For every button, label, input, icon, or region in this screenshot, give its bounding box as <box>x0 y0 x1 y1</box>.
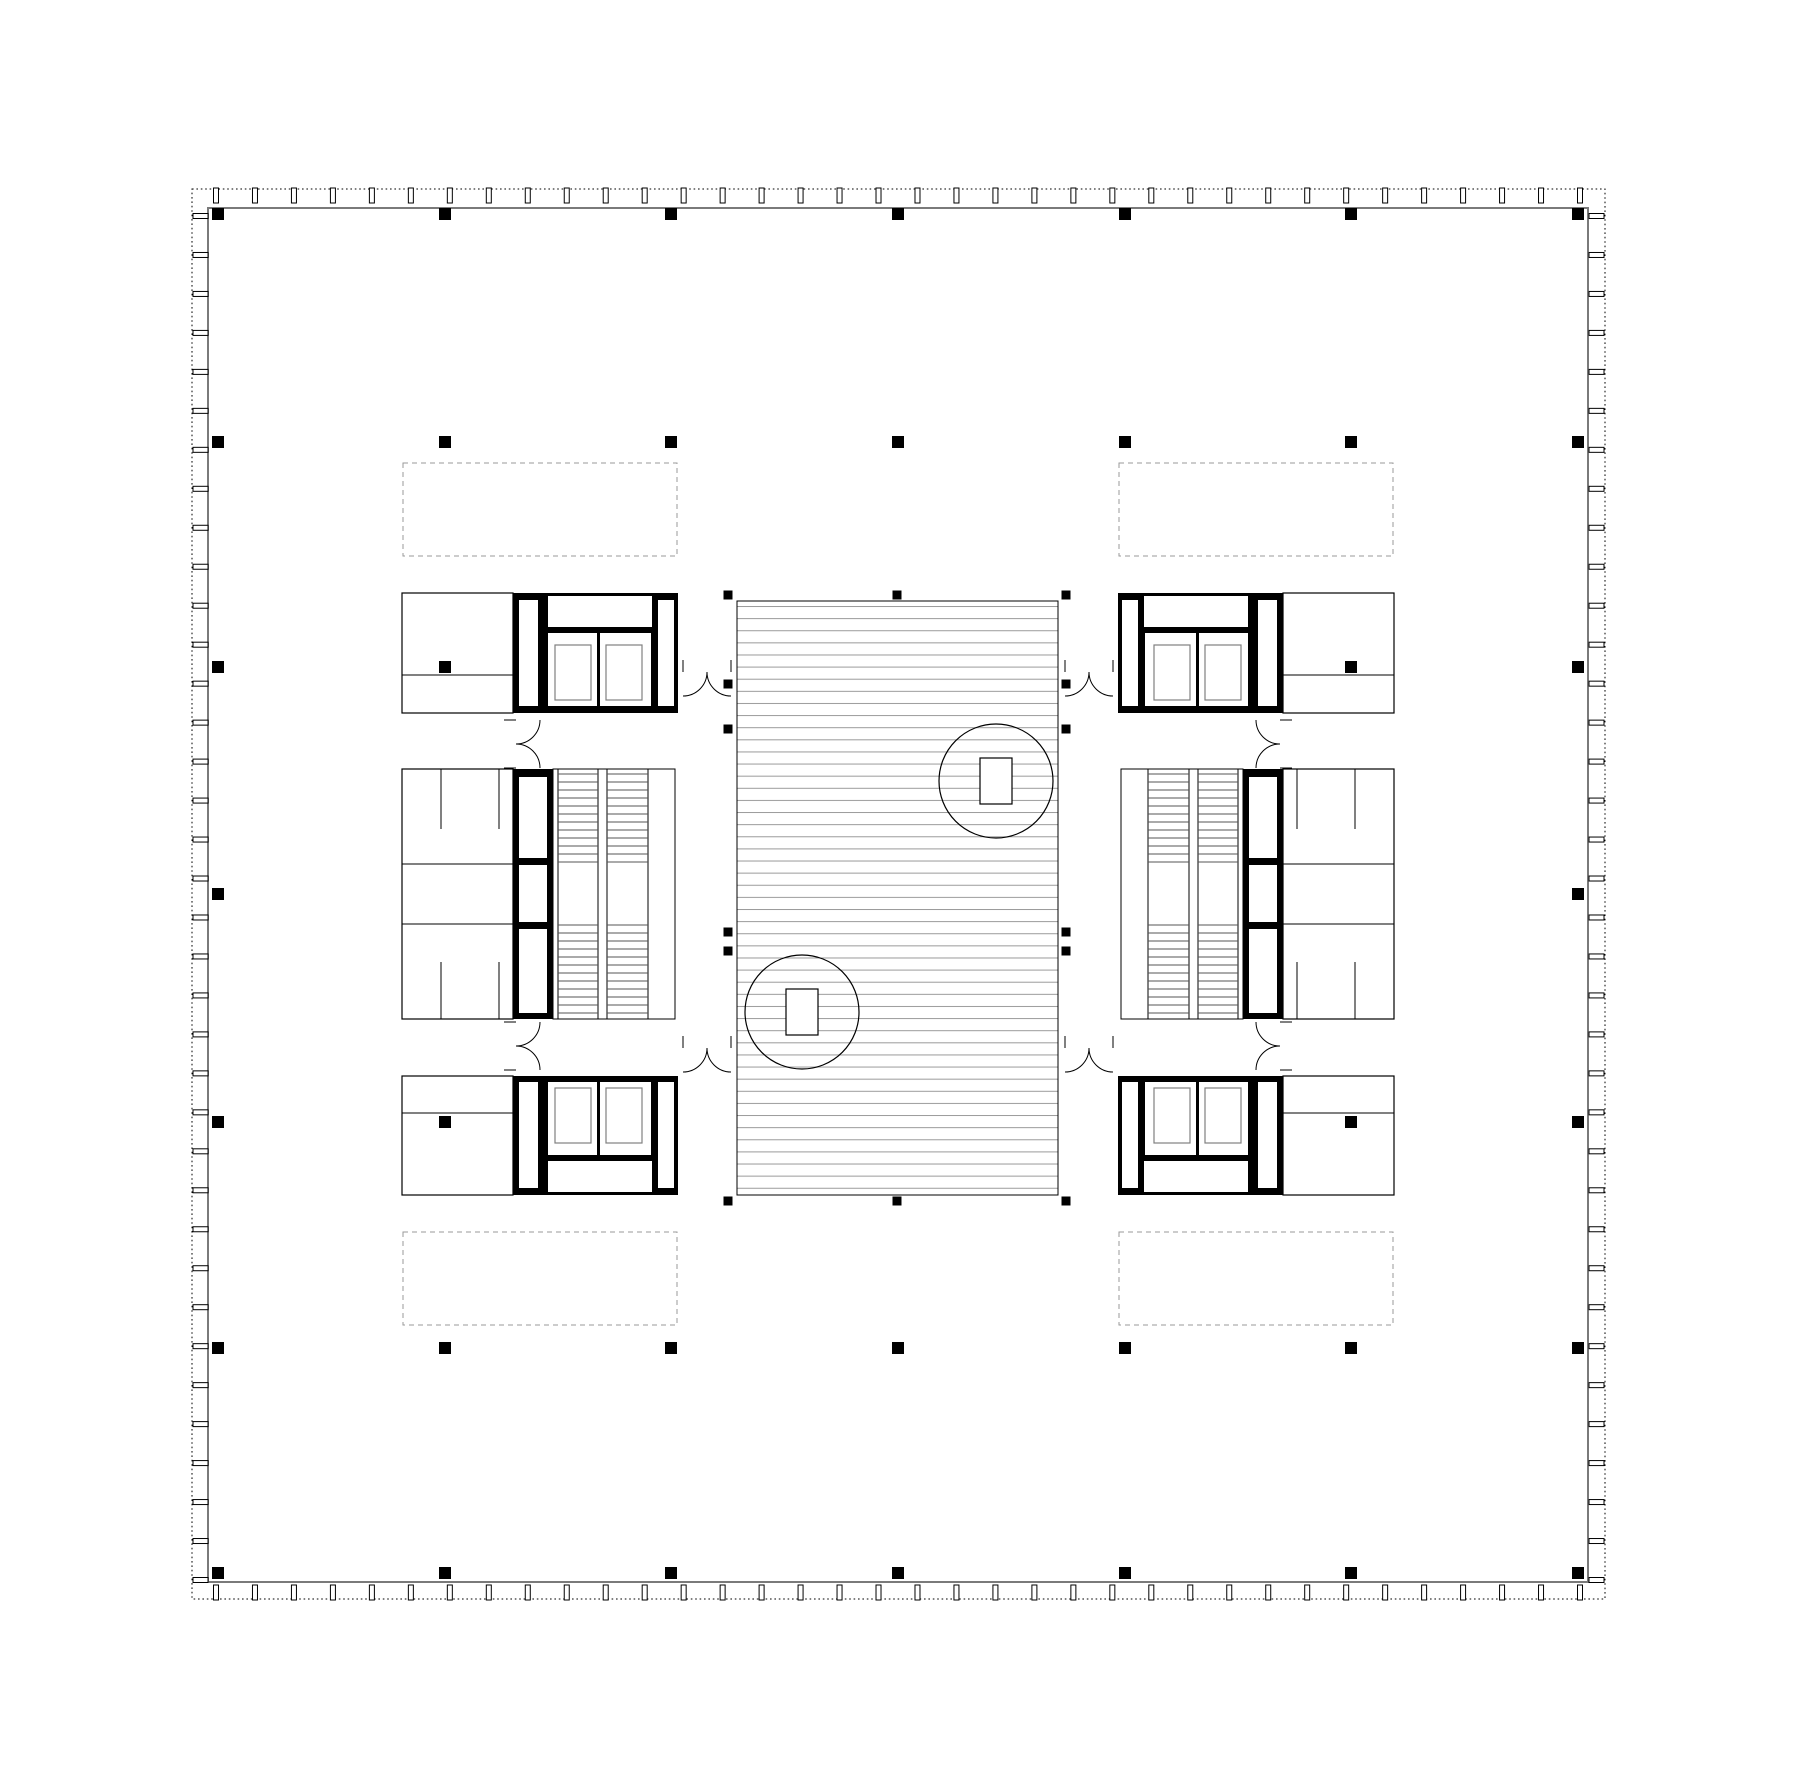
mullion-tick-right <box>1589 993 1604 998</box>
shaft-opening <box>1249 929 1277 1013</box>
mullion-tick-top <box>369 188 374 203</box>
mullion-tick-left <box>193 1149 208 1154</box>
mullion-tick-right <box>1589 1305 1604 1310</box>
mullion-tick-right <box>1589 720 1604 725</box>
structural-column <box>212 1342 224 1354</box>
atrium-edge-post <box>1062 928 1071 937</box>
structural-column <box>892 208 904 220</box>
mullion-tick-top <box>408 188 413 203</box>
mullion-tick-left <box>193 1188 208 1193</box>
shaft-opening <box>519 1082 538 1188</box>
mullion-tick-right <box>1589 564 1604 569</box>
mullion-tick-left <box>193 603 208 608</box>
mullion-tick-bottom <box>1578 1585 1583 1600</box>
structural-column <box>1572 1342 1584 1354</box>
mullion-tick-bottom <box>1539 1585 1544 1600</box>
structural-column <box>212 888 224 900</box>
mullion-tick-top <box>681 188 686 203</box>
atrium-feature-rect <box>786 989 818 1035</box>
structural-column <box>1572 436 1584 448</box>
structural-column <box>1119 436 1131 448</box>
mullion-tick-left <box>193 681 208 686</box>
mullion-tick-bottom <box>330 1585 335 1600</box>
mullion-tick-right <box>1589 642 1604 647</box>
mullion-tick-left <box>193 330 208 335</box>
mullion-tick-right <box>1589 954 1604 959</box>
mullion-tick-right <box>1589 1500 1604 1505</box>
mullion-tick-right <box>1589 252 1604 257</box>
mullion-tick-bottom <box>954 1585 959 1600</box>
elevator-car <box>606 645 642 700</box>
mullion-tick-right <box>1589 915 1604 920</box>
mullion-tick-right <box>1589 798 1604 803</box>
structural-column <box>665 1567 677 1579</box>
mullion-tick-top <box>252 188 257 203</box>
mullion-tick-top <box>1578 188 1583 203</box>
shaft-opening <box>1122 600 1138 706</box>
mullion-tick-top <box>1149 188 1154 203</box>
mullion-tick-right <box>1589 214 1604 219</box>
mullion-tick-bottom <box>603 1585 608 1600</box>
mullion-tick-bottom <box>1344 1585 1349 1600</box>
mullion-tick-left <box>193 837 208 842</box>
mullion-tick-right <box>1589 1149 1604 1154</box>
mullion-tick-left <box>193 291 208 296</box>
mullion-tick-left <box>193 1266 208 1271</box>
atrium-edge-post <box>724 680 733 689</box>
mullion-tick-right <box>1589 1578 1604 1583</box>
floor-plan-page <box>0 0 1800 1787</box>
atrium-edge-post <box>724 591 733 600</box>
mullion-tick-left <box>193 1227 208 1232</box>
structural-column <box>1345 1116 1357 1128</box>
mullion-tick-left <box>193 486 208 491</box>
core-room <box>1283 769 1394 1019</box>
mullion-tick-left <box>193 1110 208 1115</box>
shaft-opening <box>1122 1082 1138 1188</box>
mullion-tick-left <box>193 214 208 219</box>
structural-column <box>665 1342 677 1354</box>
mullion-tick-top <box>603 188 608 203</box>
mullion-tick-top <box>330 188 335 203</box>
mullion-tick-bottom <box>447 1585 452 1600</box>
mullion-tick-left <box>193 447 208 452</box>
mullion-tick-bottom <box>1071 1585 1076 1600</box>
mullion-tick-bottom <box>837 1585 842 1600</box>
mullion-tick-bottom <box>681 1585 686 1600</box>
mullion-tick-left <box>193 1032 208 1037</box>
mullion-tick-right <box>1589 759 1604 764</box>
mullion-tick-top <box>291 188 296 203</box>
atrium-edge-post <box>724 1197 733 1206</box>
mullion-tick-left <box>193 1539 208 1544</box>
structural-column <box>212 661 224 673</box>
mullion-tick-top <box>1344 188 1349 203</box>
mullion-tick-bottom <box>291 1585 296 1600</box>
mullion-tick-right <box>1589 1188 1604 1193</box>
mullion-tick-top <box>447 188 452 203</box>
mullion-tick-bottom <box>798 1585 803 1600</box>
structural-column <box>439 1116 451 1128</box>
mullion-tick-left <box>193 759 208 764</box>
shaft-opening <box>519 777 547 858</box>
structural-column <box>439 1342 451 1354</box>
elevator-car <box>1205 1088 1241 1143</box>
mullion-tick-top <box>837 188 842 203</box>
shaft-opening <box>1144 1161 1248 1192</box>
structural-column <box>1572 888 1584 900</box>
shaft-opening <box>548 1161 652 1192</box>
mullion-tick-right <box>1589 369 1604 374</box>
mullion-tick-right <box>1589 603 1604 608</box>
atrium-edge-post <box>893 1197 902 1206</box>
mullion-tick-right <box>1589 681 1604 686</box>
mullion-tick-left <box>193 954 208 959</box>
atrium-edge-post <box>1062 591 1071 600</box>
mullion-tick-bottom <box>1383 1585 1388 1600</box>
mullion-tick-bottom <box>1188 1585 1193 1600</box>
mullion-tick-top <box>954 188 959 203</box>
mullion-tick-top <box>214 188 219 203</box>
mullion-tick-top <box>525 188 530 203</box>
atrium-edge-post <box>1062 947 1071 956</box>
mullion-tick-bottom <box>1500 1585 1505 1600</box>
mullion-tick-left <box>193 1461 208 1466</box>
structural-column <box>439 208 451 220</box>
mullion-tick-top <box>564 188 569 203</box>
mullion-tick-top <box>798 188 803 203</box>
mullion-tick-bottom <box>369 1585 374 1600</box>
mullion-tick-right <box>1589 1461 1604 1466</box>
mullion-tick-bottom <box>876 1585 881 1600</box>
mullion-tick-top <box>1305 188 1310 203</box>
shaft-opening <box>658 600 674 706</box>
structural-column <box>1119 208 1131 220</box>
shaft-opening <box>519 600 538 706</box>
shaft-opening <box>1249 777 1277 858</box>
mullion-tick-bottom <box>214 1585 219 1600</box>
mullion-tick-right <box>1589 525 1604 530</box>
core-room <box>1283 1076 1394 1195</box>
mullion-tick-left <box>193 1578 208 1583</box>
mullion-tick-right <box>1589 291 1604 296</box>
structural-column <box>665 208 677 220</box>
structural-column <box>1345 436 1357 448</box>
mullion-tick-top <box>1032 188 1037 203</box>
floor-plan-drawing <box>0 0 1800 1787</box>
mullion-tick-right <box>1589 1539 1604 1544</box>
structural-column <box>892 436 904 448</box>
mullion-tick-top <box>486 188 491 203</box>
atrium-edge-post <box>1062 1197 1071 1206</box>
mullion-tick-right <box>1589 876 1604 881</box>
mullion-tick-bottom <box>1110 1585 1115 1600</box>
atrium-hatched-floor <box>737 601 1058 1195</box>
mullion-tick-top <box>993 188 998 203</box>
mullion-tick-left <box>193 798 208 803</box>
shaft-opening <box>658 1082 674 1188</box>
mullion-tick-right <box>1589 1422 1604 1427</box>
atrium-edge-post <box>724 725 733 734</box>
mullion-tick-right <box>1589 1266 1604 1271</box>
structural-column <box>212 208 224 220</box>
mullion-tick-right <box>1589 486 1604 491</box>
mullion-tick-bottom <box>993 1585 998 1600</box>
structural-column <box>212 436 224 448</box>
mullion-tick-left <box>193 1500 208 1505</box>
mullion-tick-bottom <box>1227 1585 1232 1600</box>
mullion-tick-left <box>193 993 208 998</box>
mullion-tick-left <box>193 408 208 413</box>
shaft-opening <box>1144 596 1248 627</box>
structural-column <box>439 661 451 673</box>
mullion-tick-top <box>1383 188 1388 203</box>
mullion-tick-right <box>1589 1383 1604 1388</box>
mullion-tick-bottom <box>564 1585 569 1600</box>
mullion-tick-top <box>1539 188 1544 203</box>
atrium-edge-post <box>724 947 733 956</box>
mullion-tick-top <box>642 188 647 203</box>
structural-column <box>1572 208 1584 220</box>
mullion-tick-right <box>1589 1110 1604 1115</box>
mullion-tick-bottom <box>1266 1585 1271 1600</box>
mullion-tick-left <box>193 876 208 881</box>
mullion-tick-bottom <box>486 1585 491 1600</box>
mullion-tick-left <box>193 1305 208 1310</box>
mullion-tick-top <box>1071 188 1076 203</box>
mullion-tick-bottom <box>525 1585 530 1600</box>
mullion-tick-bottom <box>915 1585 920 1600</box>
structural-column <box>1119 1342 1131 1354</box>
structural-column <box>1345 1342 1357 1354</box>
mullion-tick-right <box>1589 1032 1604 1037</box>
mullion-tick-bottom <box>252 1585 257 1600</box>
mullion-tick-bottom <box>720 1585 725 1600</box>
mullion-tick-top <box>1422 188 1427 203</box>
mullion-tick-left <box>193 1071 208 1076</box>
elevator-car <box>555 645 591 700</box>
mullion-tick-left <box>193 1422 208 1427</box>
mullion-tick-right <box>1589 1227 1604 1232</box>
structural-column <box>1345 1567 1357 1579</box>
mullion-tick-left <box>193 252 208 257</box>
structural-column <box>1345 208 1357 220</box>
mullion-tick-bottom <box>1461 1585 1466 1600</box>
elevator-car <box>555 1088 591 1143</box>
mullion-tick-bottom <box>642 1585 647 1600</box>
shaft-opening <box>1258 600 1277 706</box>
shaft-opening <box>548 596 652 627</box>
mullion-tick-top <box>1188 188 1193 203</box>
core-room <box>402 593 513 713</box>
mullion-tick-bottom <box>1149 1585 1154 1600</box>
mullion-tick-top <box>915 188 920 203</box>
elevator-car <box>1154 1088 1190 1143</box>
mullion-tick-left <box>193 525 208 530</box>
mullion-tick-left <box>193 564 208 569</box>
mullion-tick-left <box>193 915 208 920</box>
structural-column <box>1345 661 1357 673</box>
mullion-tick-left <box>193 720 208 725</box>
atrium-edge-post <box>1062 725 1071 734</box>
core-room <box>1283 593 1394 713</box>
mullion-tick-right <box>1589 447 1604 452</box>
mullion-tick-right <box>1589 837 1604 842</box>
structural-column <box>439 1567 451 1579</box>
core-room <box>402 769 513 1019</box>
structural-column <box>892 1342 904 1354</box>
elevator-car <box>1154 645 1190 700</box>
mullion-tick-left <box>193 1383 208 1388</box>
shaft-opening <box>1249 865 1277 922</box>
structural-column <box>1572 1116 1584 1128</box>
mullion-tick-top <box>720 188 725 203</box>
mullion-tick-right <box>1589 1344 1604 1349</box>
structural-column <box>1572 1567 1584 1579</box>
structural-column <box>212 1567 224 1579</box>
atrium-edge-post <box>1062 680 1071 689</box>
mullion-tick-bottom <box>1422 1585 1427 1600</box>
structural-column <box>1119 1567 1131 1579</box>
structural-column <box>665 436 677 448</box>
mullion-tick-right <box>1589 408 1604 413</box>
mullion-tick-bottom <box>1032 1585 1037 1600</box>
mullion-tick-top <box>1266 188 1271 203</box>
shaft-opening <box>519 865 547 922</box>
mullion-tick-bottom <box>408 1585 413 1600</box>
mullion-tick-left <box>193 369 208 374</box>
structural-column <box>212 1116 224 1128</box>
atrium-void <box>724 591 1071 1206</box>
mullion-tick-right <box>1589 1071 1604 1076</box>
mullion-tick-left <box>193 642 208 647</box>
mullion-tick-bottom <box>759 1585 764 1600</box>
mullion-tick-top <box>1110 188 1115 203</box>
mullion-tick-top <box>876 188 881 203</box>
structural-column <box>439 436 451 448</box>
mullion-tick-top <box>1227 188 1232 203</box>
mullion-tick-top <box>1500 188 1505 203</box>
elevator-car <box>1205 645 1241 700</box>
mullion-tick-top <box>759 188 764 203</box>
atrium-edge-post <box>893 591 902 600</box>
structural-column <box>892 1567 904 1579</box>
mullion-tick-top <box>1461 188 1466 203</box>
core-room <box>402 1076 513 1195</box>
shaft-opening <box>519 929 547 1013</box>
atrium-feature-rect <box>980 758 1012 804</box>
structural-column <box>1572 661 1584 673</box>
mullion-tick-left <box>193 1344 208 1349</box>
mullion-tick-right <box>1589 330 1604 335</box>
elevator-car <box>606 1088 642 1143</box>
atrium-edge-post <box>724 928 733 937</box>
mullion-tick-bottom <box>1305 1585 1310 1600</box>
shaft-opening <box>1258 1082 1277 1188</box>
